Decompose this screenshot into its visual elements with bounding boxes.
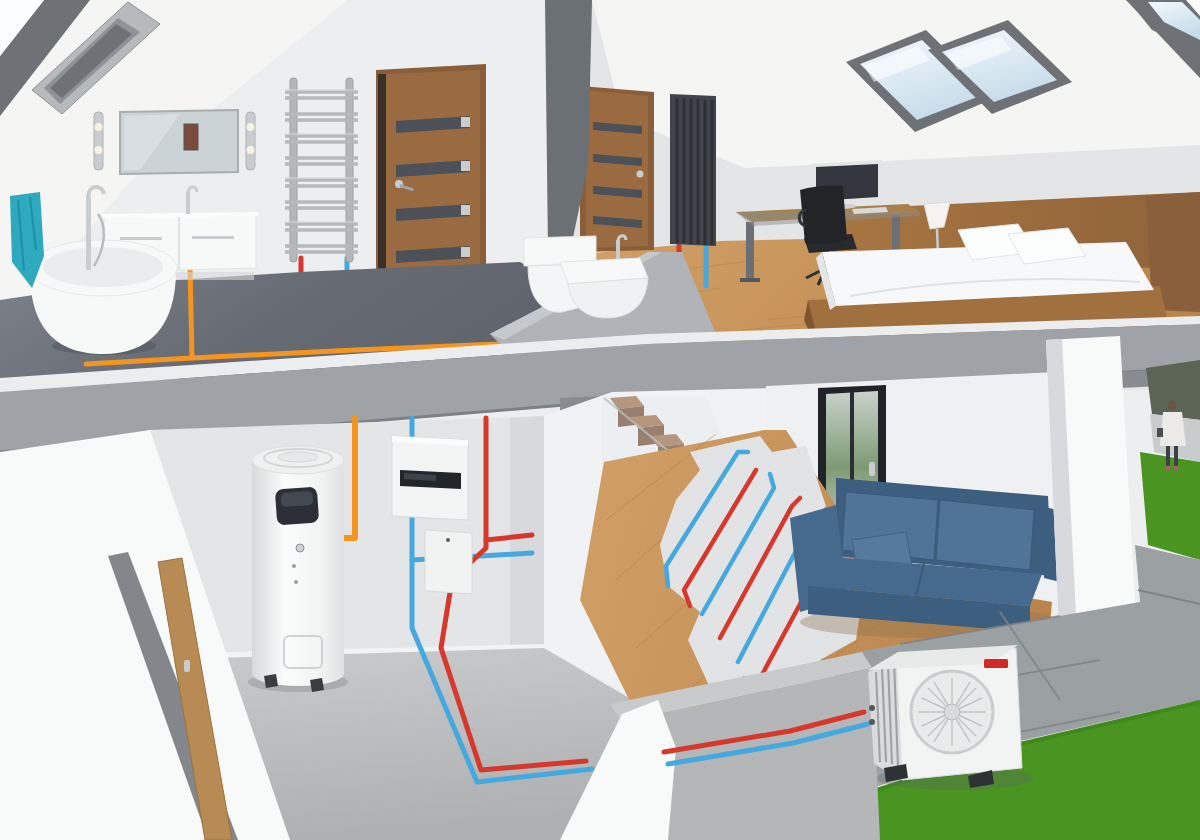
sink-faucet xyxy=(186,192,190,214)
house-cutaway-render xyxy=(0,0,1200,840)
glass-door-handle xyxy=(869,462,875,476)
person-bag xyxy=(1157,428,1163,437)
drawer-handle xyxy=(120,237,162,240)
desk-leg xyxy=(746,222,754,280)
door-glass-strips-part xyxy=(461,117,470,127)
mirror-picture-reflection xyxy=(184,124,198,150)
unit-indicator xyxy=(446,538,450,542)
pipe-port xyxy=(869,705,875,711)
towel-ladder-radiator-part xyxy=(346,78,353,262)
hydraulic-wall-unit-upper xyxy=(392,436,468,520)
door-glass-strips-part xyxy=(461,205,470,215)
wall-lamp-left-part xyxy=(94,112,103,170)
lamp-glow xyxy=(247,146,255,154)
lamp-glow xyxy=(95,146,103,154)
foot xyxy=(264,674,278,688)
chair-back xyxy=(800,186,847,245)
hydraulic-wall-unit-lower xyxy=(425,530,472,594)
person-shoe xyxy=(1166,466,1171,471)
door-edge-handle xyxy=(184,660,190,672)
person-coat xyxy=(1160,412,1186,446)
wall-lamp-right-part xyxy=(246,112,255,170)
pipe-port xyxy=(869,719,875,725)
display-glare xyxy=(281,491,314,507)
fan-hub xyxy=(944,704,960,720)
scene-svg xyxy=(0,0,1200,840)
person-shoe xyxy=(1174,466,1179,471)
door-handle xyxy=(637,171,644,178)
gauge xyxy=(296,544,304,552)
desk-foot xyxy=(740,278,760,282)
fitting xyxy=(294,580,298,584)
wall-lamp-left xyxy=(94,112,103,170)
utility-room xyxy=(0,416,636,840)
heat-pump-water-heater xyxy=(248,446,348,692)
interior-door-2 xyxy=(580,86,654,252)
wall-lamp-right xyxy=(246,112,255,170)
top-cap xyxy=(278,452,318,462)
door-glass-strips-part xyxy=(461,161,470,171)
drawer-handle xyxy=(192,236,234,239)
tub-interior xyxy=(43,247,163,287)
person-head xyxy=(1168,401,1177,410)
brand-logo-badge xyxy=(984,659,1008,668)
back-cushion xyxy=(936,500,1034,570)
bathroom-mirror xyxy=(120,110,238,174)
lamp-glow xyxy=(247,123,255,131)
foot xyxy=(310,678,324,692)
fitting xyxy=(292,564,296,568)
foliage xyxy=(1146,360,1200,420)
person-leg xyxy=(1174,446,1178,466)
outdoor-heat-pump-unit xyxy=(868,645,1033,790)
lamp-glow xyxy=(95,123,103,131)
door-glass-strips-part xyxy=(461,247,470,257)
towel-ladder-radiator-part xyxy=(290,78,297,262)
tub-faucet-pole xyxy=(86,196,91,270)
person-leg xyxy=(1166,446,1170,466)
